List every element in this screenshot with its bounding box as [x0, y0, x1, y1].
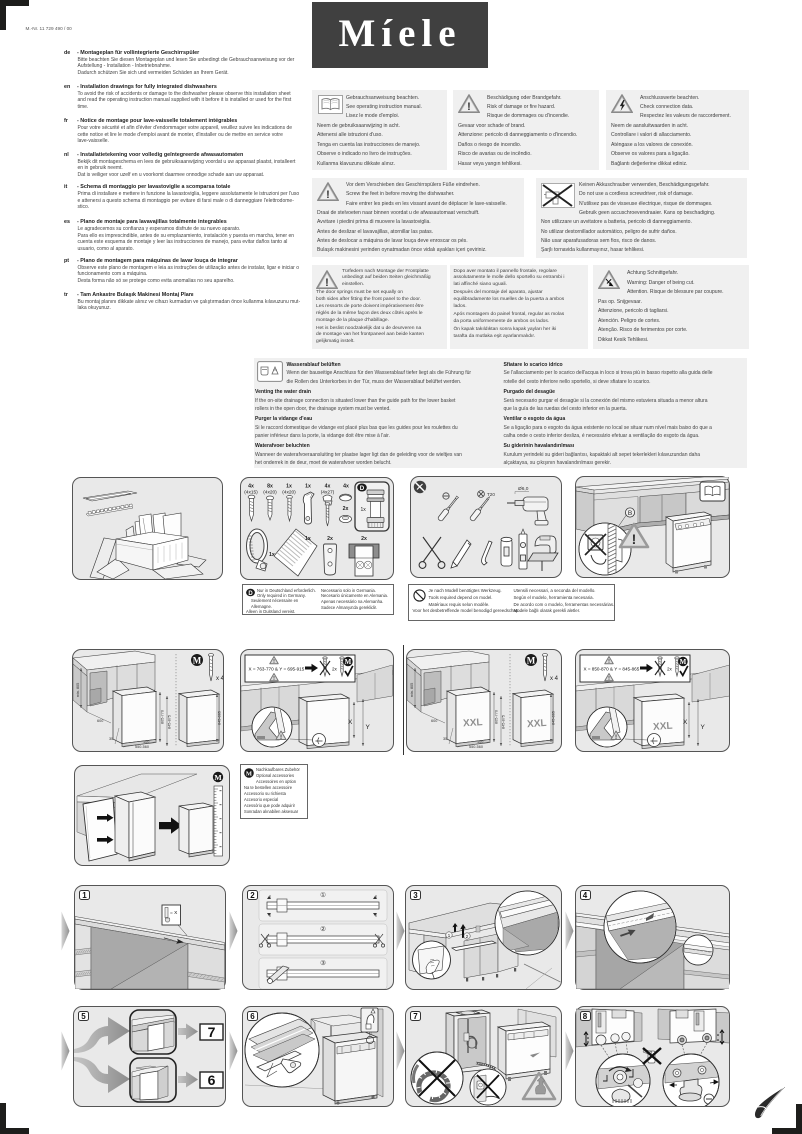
svg-text:1x: 1x	[361, 507, 367, 513]
svg-text:7: 7	[208, 1024, 216, 1040]
svg-text:550-560: 550-560	[135, 745, 149, 749]
svg-text:T20: T20	[487, 492, 495, 497]
svg-text:2x: 2x	[667, 666, 673, 671]
svg-text:M: M	[214, 773, 222, 782]
svg-text:min. 805: min. 805	[76, 682, 80, 697]
svg-text:4x: 4x	[325, 484, 331, 490]
svg-text:100: 100	[143, 740, 149, 744]
svg-text:(4x20): (4x20)	[263, 490, 277, 496]
svg-text:6: 6	[208, 1072, 216, 1088]
svg-text:!: !	[273, 676, 275, 682]
svg-text:1x: 1x	[286, 484, 292, 490]
svg-text:100: 100	[477, 740, 483, 744]
svg-text:!: !	[326, 189, 330, 201]
svg-text:X = 850-870 & Y = 845-865: X = 850-870 & Y = 845-865	[583, 666, 639, 671]
svg-text:845-875: 845-875	[502, 715, 506, 729]
svg-text:845-875: 845-875	[168, 715, 172, 729]
svg-text:1x: 1x	[305, 536, 311, 542]
svg-text:Y: Y	[700, 724, 705, 731]
svg-text:35: 35	[443, 737, 447, 741]
svg-text:4x: 4x	[248, 484, 254, 490]
svg-text:D: D	[248, 591, 253, 597]
svg-text:x 4: x 4	[550, 676, 559, 682]
svg-text:2x: 2x	[361, 536, 367, 542]
svg-text:!: !	[608, 659, 610, 665]
svg-text:M: M	[527, 655, 536, 665]
svg-text:2x: 2x	[332, 666, 338, 671]
svg-text:X = 763-770 & Y = 695-915: X = 763-770 & Y = 695-915	[249, 666, 305, 671]
svg-text:②: ②	[320, 925, 326, 933]
svg-text:2x: 2x	[343, 506, 349, 512]
svg-text:!: !	[467, 101, 471, 113]
svg-text:①: ①	[320, 891, 326, 899]
svg-text:805-770: 805-770	[495, 710, 499, 724]
svg-text:(4x20): (4x20)	[282, 490, 296, 496]
svg-text:1x: 1x	[269, 552, 275, 558]
svg-text:!: !	[608, 676, 610, 682]
svg-text:(4x15): (4x15)	[244, 490, 258, 496]
svg-text:min. 805: min. 805	[410, 682, 414, 697]
svg-text:Y: Y	[366, 724, 371, 731]
svg-text:③: ③	[320, 959, 326, 967]
svg-text:1x: 1x	[305, 484, 311, 490]
svg-text:D: D	[360, 485, 365, 492]
svg-text:XXL: XXL	[527, 717, 547, 729]
svg-text:X: X	[348, 719, 353, 726]
svg-text:!: !	[325, 277, 329, 289]
svg-text:!: !	[614, 733, 616, 740]
svg-text:Ø6,0: Ø6,0	[518, 486, 529, 492]
svg-text:550-560: 550-560	[469, 745, 483, 749]
svg-text:!: !	[273, 659, 275, 665]
svg-text:M: M	[193, 655, 202, 665]
svg-text:2x: 2x	[327, 536, 333, 542]
svg-text:XXL: XXL	[463, 717, 483, 729]
svg-text:8x: 8x	[267, 484, 273, 490]
svg-text:4x: 4x	[343, 484, 349, 490]
svg-text:M: M	[246, 770, 252, 777]
svg-text:X: X	[683, 719, 688, 726]
svg-text:845-865: 845-865	[552, 711, 556, 725]
svg-text:35: 35	[109, 737, 113, 741]
svg-text:!: !	[280, 733, 282, 740]
svg-text:805-770: 805-770	[161, 710, 165, 724]
svg-text:845-865: 845-865	[218, 711, 222, 725]
svg-text:M: M	[345, 658, 352, 666]
svg-text:x 4: x 4	[216, 676, 223, 682]
svg-text:600: 600	[431, 719, 437, 723]
svg-text:XXL: XXL	[652, 720, 672, 732]
svg-text:= X: = X	[170, 910, 178, 916]
svg-text:600: 600	[97, 719, 103, 723]
svg-text:!: !	[631, 531, 636, 547]
svg-text:B: B	[627, 510, 631, 517]
svg-text:M: M	[679, 658, 686, 666]
